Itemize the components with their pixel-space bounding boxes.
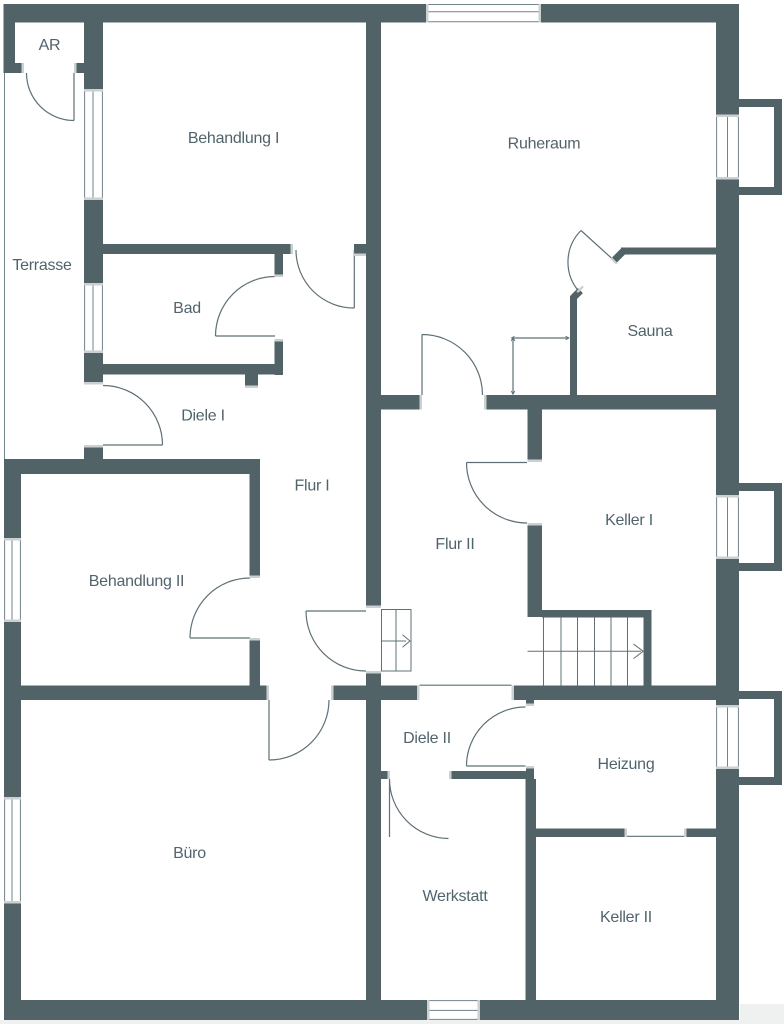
svg-text:Ruheraum: Ruheraum [508,136,581,153]
svg-text:Werkstatt: Werkstatt [422,888,488,905]
svg-text:Flur I: Flur I [295,478,330,495]
svg-text:Keller I: Keller I [605,512,653,529]
svg-text:Behandlung I: Behandlung I [188,130,279,147]
svg-text:Heizung: Heizung [598,756,655,773]
svg-text:Terrasse: Terrasse [12,257,72,274]
svg-text:Flur II: Flur II [435,536,474,553]
svg-text:Keller II: Keller II [600,909,652,926]
svg-text:Behandlung II: Behandlung II [89,573,185,590]
svg-text:Diele I: Diele I [181,408,225,425]
svg-text:Büro: Büro [173,845,206,862]
svg-text:Sauna: Sauna [627,323,672,340]
svg-text:Diele II: Diele II [403,730,451,747]
svg-text:Bad: Bad [173,300,201,317]
svg-text:AR: AR [39,37,61,54]
